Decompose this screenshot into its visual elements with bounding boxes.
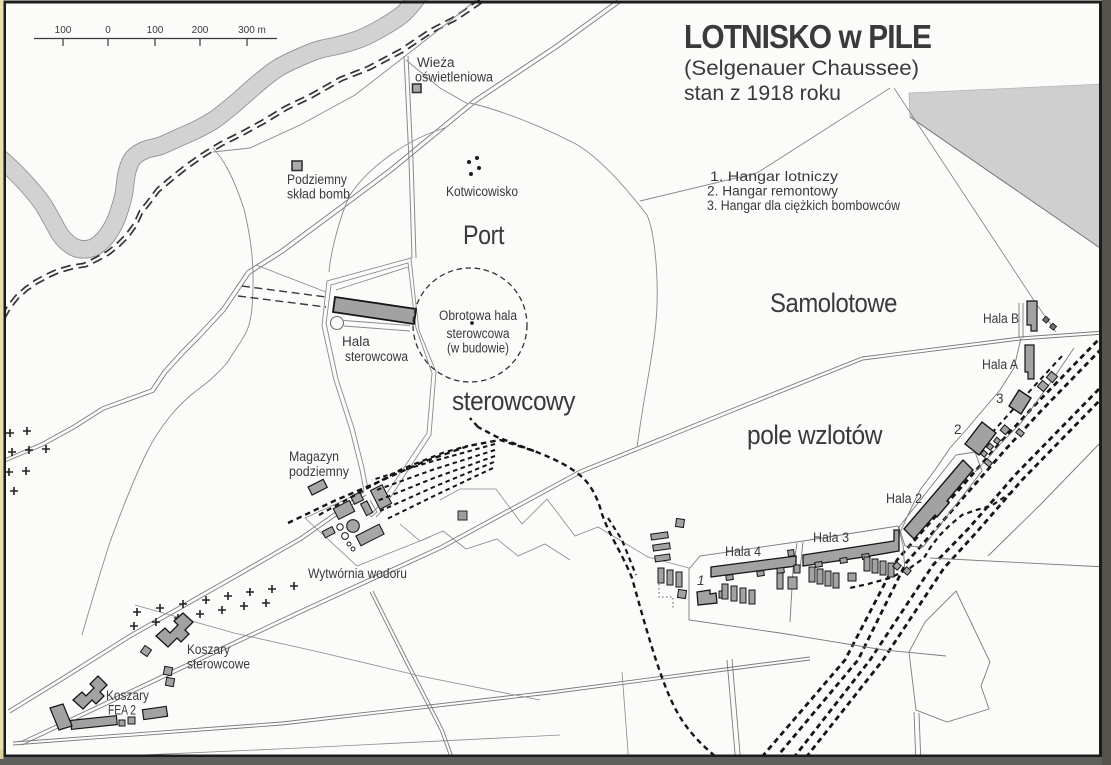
- svg-text:Obrotowa hala: Obrotowa hala: [439, 308, 517, 323]
- svg-text:(Selgenauer Chaussee): (Selgenauer Chaussee): [684, 56, 919, 80]
- svg-text:Koszary: Koszary: [187, 642, 230, 657]
- svg-text:Koszary: Koszary: [106, 688, 149, 703]
- svg-text:Hala 2: Hala 2: [886, 491, 922, 506]
- svg-text:Hala 3: Hala 3: [813, 530, 849, 545]
- svg-text:Wytwórnia wodoru: Wytwórnia wodoru: [308, 566, 407, 581]
- svg-text:1. Hangar lotniczy: 1. Hangar lotniczy: [710, 169, 838, 184]
- svg-text:2. Hangar remontowy: 2. Hangar remontowy: [707, 184, 838, 199]
- svg-text:podziemny: podziemny: [289, 464, 349, 479]
- svg-text:stan z 1918 roku: stan z 1918 roku: [684, 81, 841, 105]
- svg-text:200: 200: [192, 25, 209, 36]
- svg-text:Hala 4: Hala 4: [725, 544, 761, 559]
- svg-text:sterowcowa: sterowcowa: [447, 326, 510, 341]
- svg-text:0: 0: [105, 25, 111, 36]
- svg-text:sterowcowy: sterowcowy: [452, 386, 576, 416]
- svg-text:100: 100: [55, 25, 72, 36]
- svg-text:Wieża: Wieża: [417, 55, 455, 70]
- svg-text:2: 2: [954, 422, 962, 437]
- svg-text:Hala A: Hala A: [982, 357, 1018, 372]
- svg-text:sterowcowe: sterowcowe: [187, 657, 250, 672]
- svg-text:Kotwicowisko: Kotwicowisko: [446, 184, 518, 199]
- svg-text:1: 1: [697, 573, 705, 588]
- svg-text:pole wzlotów: pole wzlotów: [747, 420, 883, 450]
- svg-text:oświetleniowa: oświetleniowa: [415, 70, 493, 85]
- svg-text:skład bomb: skład bomb: [287, 187, 350, 202]
- svg-text:Hala B: Hala B: [983, 311, 1019, 326]
- svg-text:Port: Port: [463, 220, 505, 250]
- svg-text:sterowcowa: sterowcowa: [345, 349, 408, 364]
- svg-text:Magazyn: Magazyn: [289, 449, 339, 464]
- svg-text:Podziemny: Podziemny: [287, 172, 347, 187]
- svg-text:LOTNISKO w PILE: LOTNISKO w PILE: [684, 18, 931, 55]
- svg-text:3. Hangar dla ciężkich bombowc: 3. Hangar dla ciężkich bombowców: [707, 198, 900, 213]
- svg-text:Samolotowe: Samolotowe: [770, 288, 897, 318]
- svg-text:3: 3: [996, 391, 1004, 406]
- svg-text:300 m: 300 m: [238, 25, 266, 36]
- svg-text:FEA 2: FEA 2: [108, 703, 136, 718]
- svg-text:Hala: Hala: [342, 334, 370, 349]
- svg-text:(w budowie): (w budowie): [447, 341, 509, 356]
- svg-text:100: 100: [147, 25, 164, 36]
